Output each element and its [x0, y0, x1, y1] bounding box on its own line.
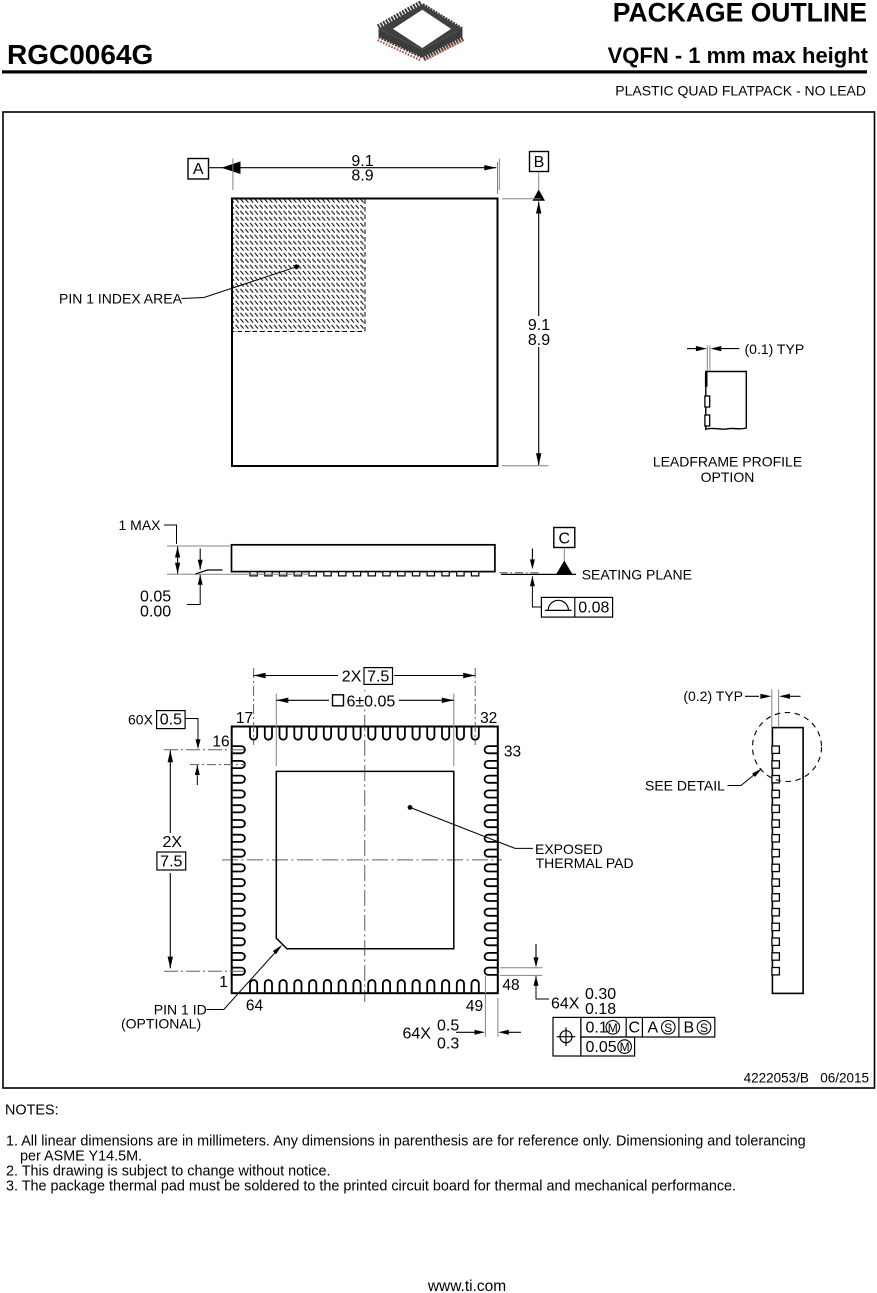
- svg-text:0.5: 0.5: [160, 712, 182, 729]
- svg-text:64: 64: [246, 998, 264, 1015]
- svg-text:1 MAX: 1 MAX: [119, 517, 162, 533]
- svg-text:0.5: 0.5: [437, 1018, 459, 1035]
- svg-text:OPTION: OPTION: [701, 469, 755, 485]
- svg-text:RGC0064G: RGC0064G: [7, 39, 153, 70]
- svg-text:2. This drawing is subject to: 2. This drawing is subject to change wit…: [6, 1164, 331, 1180]
- svg-text:S: S: [700, 1021, 708, 1035]
- svg-text:THERMAL PAD: THERMAL PAD: [536, 855, 634, 871]
- svg-text:7.5: 7.5: [160, 854, 182, 871]
- svg-text:PACKAGE OUTLINE: PACKAGE OUTLINE: [613, 0, 867, 28]
- svg-text:S: S: [664, 1021, 672, 1035]
- svg-text:3. The package thermal pad mus: 3. The package thermal pad must be solde…: [6, 1179, 736, 1195]
- svg-text:8.9: 8.9: [351, 168, 373, 185]
- svg-text:7.5: 7.5: [367, 669, 389, 686]
- svg-text:A: A: [193, 161, 204, 178]
- svg-text:0.18: 0.18: [585, 1001, 616, 1018]
- svg-text:M: M: [620, 1040, 630, 1054]
- svg-text:SEE DETAIL: SEE DETAIL: [645, 778, 725, 794]
- svg-text:B: B: [534, 154, 545, 171]
- svg-text:8.9: 8.9: [528, 332, 550, 349]
- svg-text:M: M: [608, 1021, 618, 1035]
- svg-text:LEADFRAME PROFILE: LEADFRAME PROFILE: [653, 454, 802, 470]
- svg-text:6±0.05: 6±0.05: [347, 694, 396, 711]
- svg-text:VQFN - 1 mm max height: VQFN - 1 mm max height: [608, 43, 869, 68]
- svg-text:NOTES:: NOTES:: [5, 1103, 59, 1119]
- svg-text:(0.1) TYP: (0.1) TYP: [745, 341, 805, 357]
- svg-text:2X: 2X: [342, 669, 362, 686]
- svg-text:0.1: 0.1: [586, 1020, 608, 1037]
- svg-text:(OPTIONAL): (OPTIONAL): [121, 1016, 201, 1032]
- svg-text:A: A: [648, 1020, 659, 1037]
- svg-text:SEATING PLANE: SEATING PLANE: [582, 567, 692, 583]
- svg-text:0.3: 0.3: [437, 1036, 459, 1053]
- svg-text:C: C: [629, 1020, 641, 1037]
- svg-text:64X: 64X: [403, 1026, 432, 1043]
- svg-text:1. All linear dimensions are i: 1. All linear dimensions are in millimet…: [6, 1134, 806, 1150]
- svg-text:32: 32: [480, 710, 497, 727]
- svg-text:(0.2) TYP: (0.2) TYP: [683, 688, 743, 704]
- svg-text:48: 48: [502, 977, 519, 994]
- svg-text:1: 1: [219, 974, 228, 991]
- svg-text:49: 49: [466, 998, 483, 1015]
- svg-text:B: B: [684, 1020, 695, 1037]
- svg-text:16: 16: [212, 734, 229, 751]
- svg-text:17: 17: [236, 710, 253, 727]
- svg-text:64X: 64X: [551, 996, 580, 1013]
- svg-text:60X: 60X: [128, 712, 154, 728]
- svg-text:PIN 1 INDEX AREA: PIN 1 INDEX AREA: [59, 291, 183, 307]
- svg-text:www.ti.com: www.ti.com: [427, 1278, 506, 1293]
- svg-text:PLASTIC QUAD FLATPACK - NO LEA: PLASTIC QUAD FLATPACK - NO LEAD: [615, 83, 866, 99]
- svg-text:2X: 2X: [163, 834, 183, 851]
- svg-text:0.05: 0.05: [586, 1039, 617, 1056]
- svg-text:0.00: 0.00: [140, 604, 171, 621]
- svg-text:33: 33: [504, 744, 521, 761]
- svg-text:0.08: 0.08: [578, 600, 609, 617]
- svg-text:C: C: [559, 531, 571, 548]
- svg-text:per ASME Y14.5M.: per ASME Y14.5M.: [20, 1149, 142, 1165]
- svg-text:4222053/B 06/2015: 4222053/B 06/2015: [744, 1071, 869, 1086]
